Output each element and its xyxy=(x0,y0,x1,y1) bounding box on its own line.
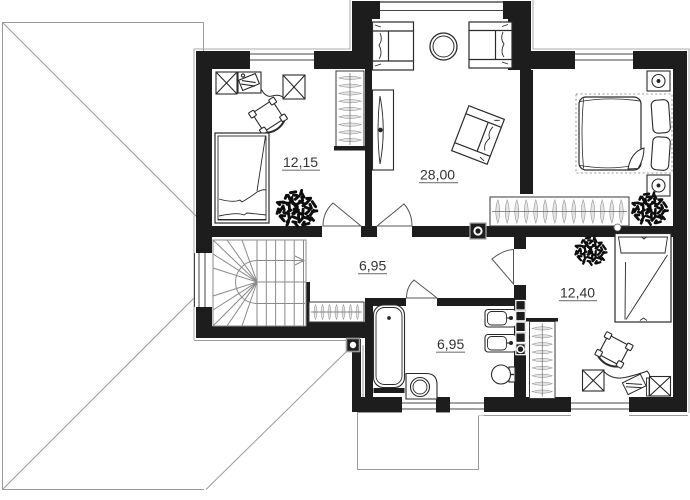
svg-text:6,95: 6,95 xyxy=(359,258,386,274)
svg-text:28,00: 28,00 xyxy=(420,167,455,183)
svg-text:12,40: 12,40 xyxy=(560,285,595,301)
svg-text:12,15: 12,15 xyxy=(283,154,318,170)
svg-text:6,95: 6,95 xyxy=(437,336,464,352)
